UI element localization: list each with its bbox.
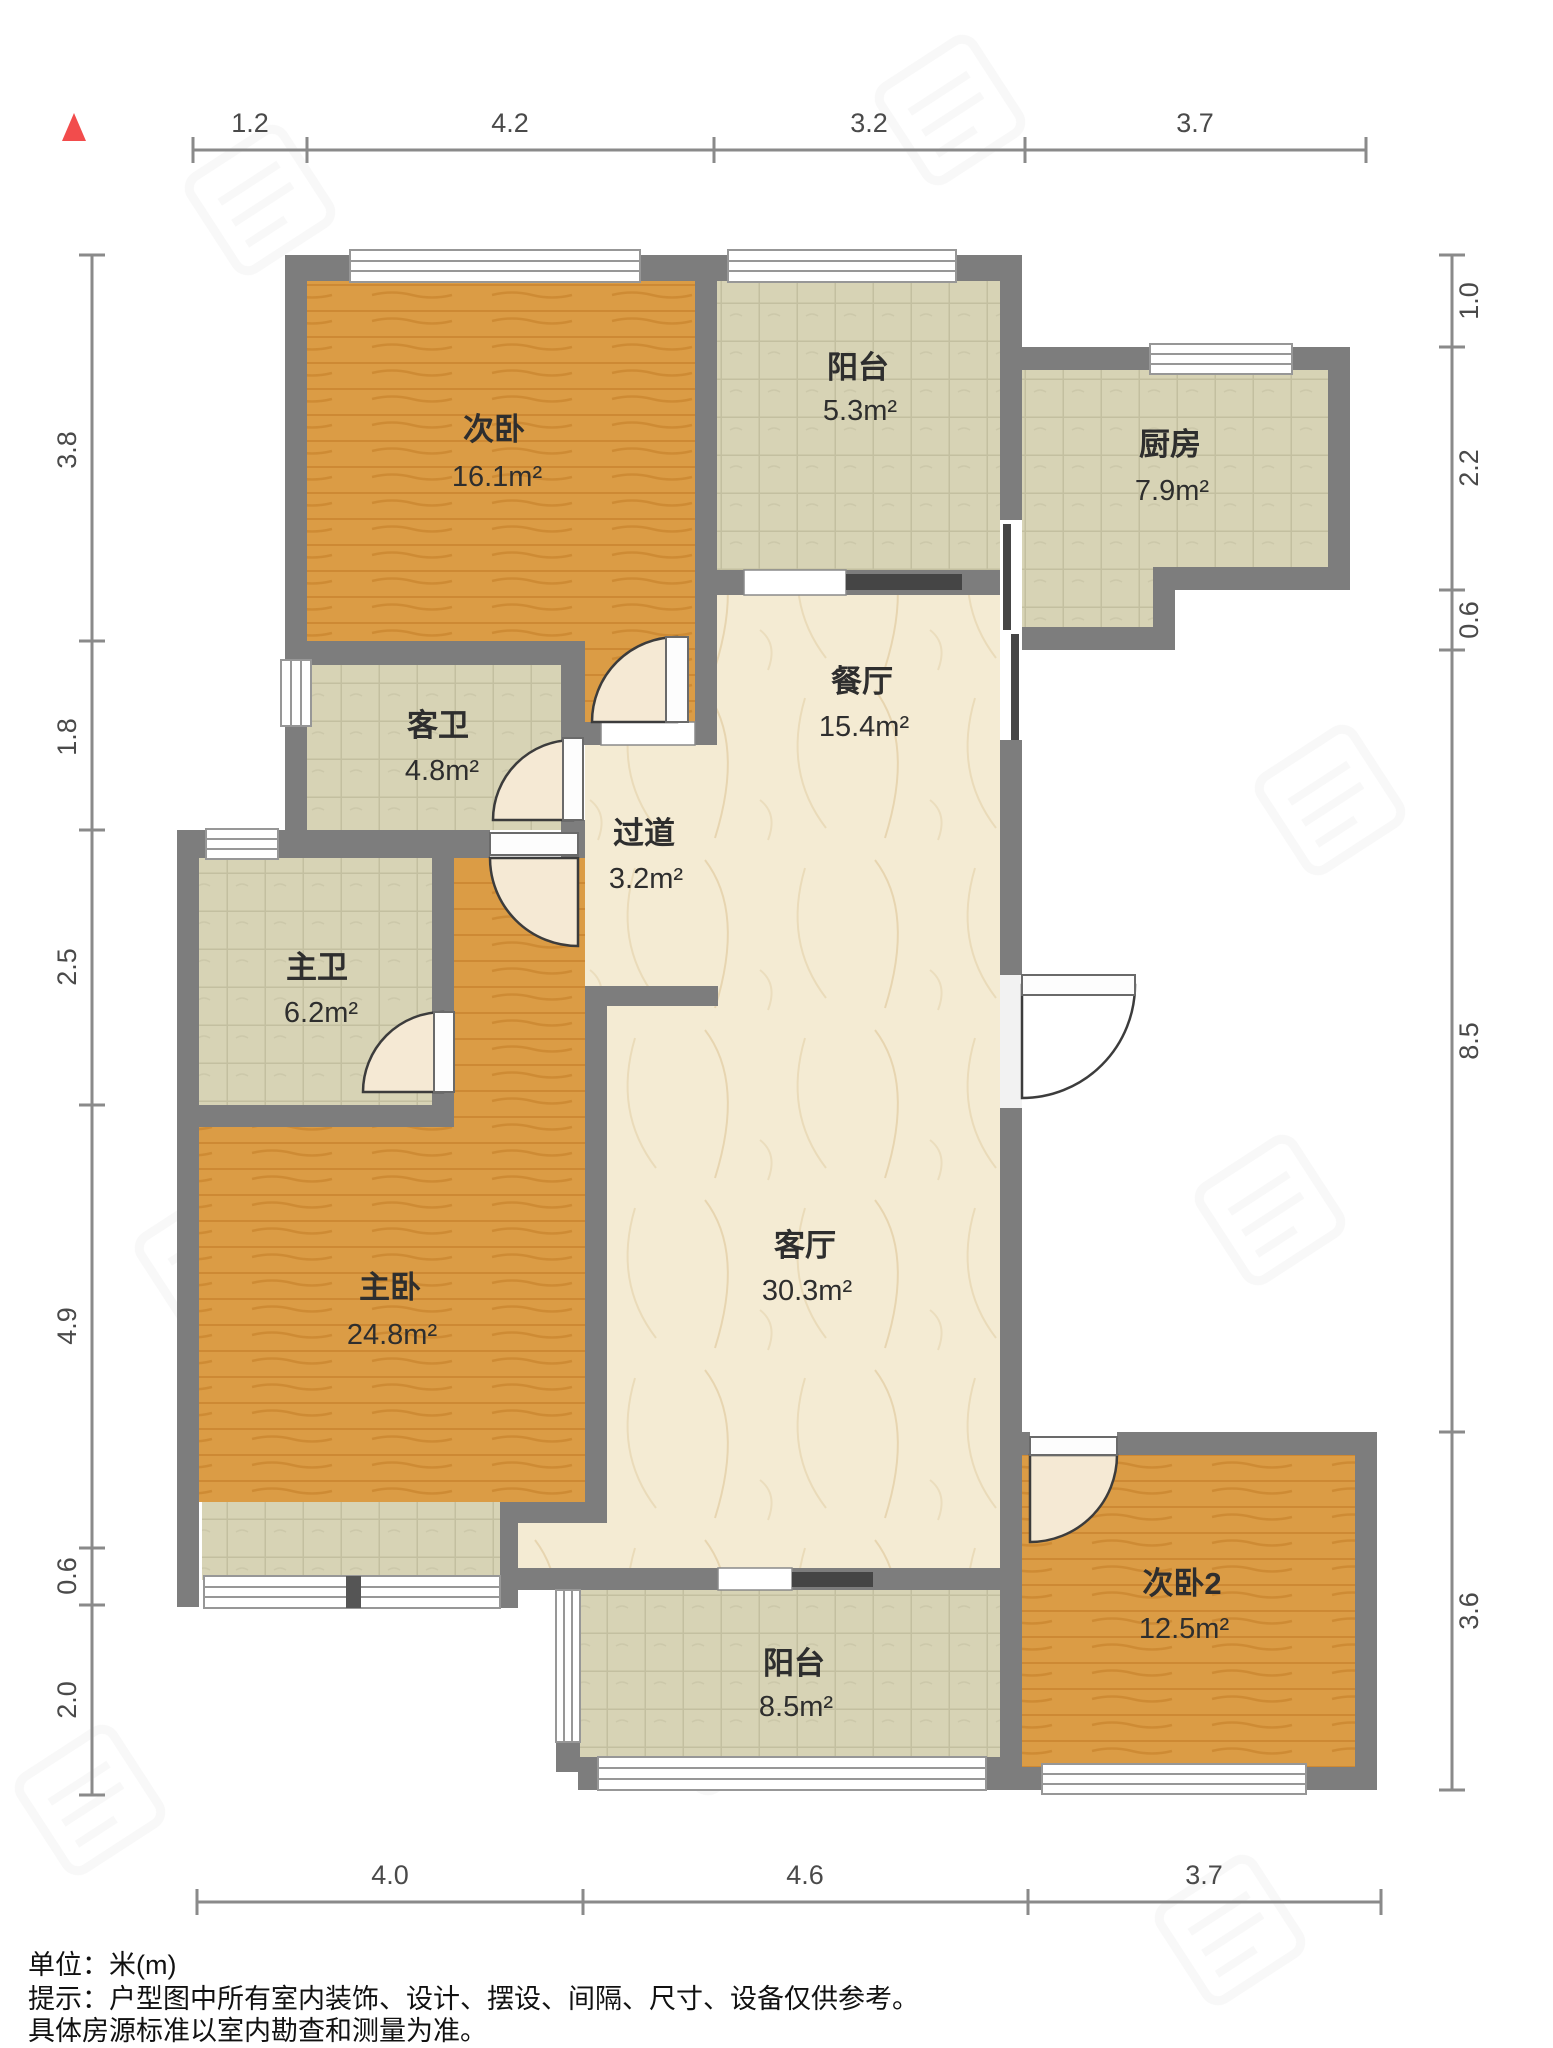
floorplan-svg: 次卧 16.1m² 阳台 5.3m² 厨房 7.9m² 餐厅 15.4m² 客卫… bbox=[0, 0, 1553, 2048]
dim-right-2: 0.6 bbox=[1454, 601, 1484, 639]
north-marker-icon bbox=[62, 113, 86, 141]
window-yangtai-bottom-south bbox=[598, 1757, 986, 1790]
dim-left-5: 2.0 bbox=[52, 1681, 82, 1719]
label-zhuwo-name: 主卧 bbox=[359, 1270, 421, 1305]
dim-bottom-1: 4.6 bbox=[786, 1860, 824, 1890]
dim-right-1: 2.2 bbox=[1454, 449, 1484, 487]
dim-left-3: 4.9 bbox=[52, 1307, 82, 1345]
dimension-left: 3.8 1.8 2.5 4.9 0.6 2.0 bbox=[52, 255, 105, 1795]
label-canting-area: 15.4m² bbox=[819, 711, 910, 743]
dim-right-3: 8.5 bbox=[1454, 1022, 1484, 1060]
label-chufang-name: 厨房 bbox=[1139, 427, 1201, 462]
label-yangtai-top-name: 阳台 bbox=[827, 350, 889, 385]
wall-zhuwei-right-b bbox=[432, 1092, 454, 1105]
label-kewei-name: 客卫 bbox=[407, 708, 469, 743]
dim-top-2: 3.2 bbox=[850, 108, 888, 138]
window-cewo2-south bbox=[1042, 1764, 1306, 1794]
window-yangtai-bottom-west bbox=[556, 1590, 580, 1742]
label-guodao-area: 3.2m² bbox=[609, 863, 683, 895]
label-canting-name: 餐厅 bbox=[831, 664, 893, 699]
label-yangtai-bottom-area: 8.5m² bbox=[759, 1691, 833, 1723]
label-zhuwei-name: 主卫 bbox=[286, 950, 348, 985]
wall-yangtai-bottom-left-cap bbox=[556, 1742, 580, 1772]
dim-left-1: 1.8 bbox=[52, 718, 82, 756]
label-cewo-name: 次卧 bbox=[463, 412, 525, 447]
footer-tip-2: 具体房源标准以室内勘查和测量为准。 bbox=[28, 2016, 487, 2046]
wall-cewo2-top-a bbox=[1000, 1432, 1030, 1455]
wall-cewo2-top-b bbox=[1117, 1432, 1377, 1455]
window-zhuwo-bay-south bbox=[204, 1576, 500, 1608]
label-zhuwo-area: 24.8m² bbox=[347, 1319, 438, 1351]
label-keting-name: 客厅 bbox=[774, 1228, 836, 1263]
wall-left-upper bbox=[285, 255, 307, 830]
label-yangtai-bottom-name: 阳台 bbox=[763, 1646, 825, 1681]
window-kewei-west bbox=[281, 660, 311, 726]
dim-bottom-0: 4.0 bbox=[371, 1860, 409, 1890]
dim-top-0: 1.2 bbox=[231, 108, 269, 138]
label-yangtai-top-area: 5.3m² bbox=[823, 395, 897, 427]
footer: 单位：米(m) 提示：户型图中所有室内装饰、设计、摆设、间隔、尺寸、设备仅供参考… bbox=[28, 1950, 919, 2046]
wall-zhuwei-bottom bbox=[177, 1105, 454, 1127]
window-chufang-north bbox=[1150, 344, 1292, 374]
floor-zhuwo bbox=[199, 1127, 585, 1502]
opening-entry bbox=[1000, 975, 1022, 1108]
window-cewo-north bbox=[350, 250, 640, 282]
label-cewo2-area: 12.5m² bbox=[1139, 1613, 1230, 1645]
window-zhuwei-north bbox=[206, 829, 278, 859]
wall-mid-vertical bbox=[695, 255, 717, 745]
label-zhuwei-area: 6.2m² bbox=[284, 997, 358, 1029]
window-divider bbox=[346, 1576, 361, 1608]
label-guodao-name: 过道 bbox=[613, 816, 675, 851]
wall-keting-left bbox=[585, 986, 607, 1502]
dim-right-0: 1.0 bbox=[1454, 282, 1484, 320]
window-yangtai-top-north bbox=[728, 250, 956, 282]
dim-bottom-2: 3.7 bbox=[1185, 1860, 1223, 1890]
wall-chufang-notch-h bbox=[1175, 567, 1350, 590]
dim-top-1: 4.2 bbox=[491, 108, 529, 138]
wall-guodao-bottom bbox=[585, 986, 718, 1006]
dim-left-0: 3.8 bbox=[52, 431, 82, 469]
dimension-bottom: 4.0 4.6 3.7 bbox=[197, 1860, 1381, 1915]
wall-cewo-bottom bbox=[285, 641, 581, 665]
dim-top-3: 3.7 bbox=[1176, 108, 1214, 138]
label-cewo2-name: 次卧2 bbox=[1142, 1566, 1221, 1601]
footer-tip-1: 提示：户型图中所有室内装饰、设计、摆设、间隔、尺寸、设备仅供参考。 bbox=[28, 1984, 919, 2014]
dim-left-4: 0.6 bbox=[52, 1557, 82, 1595]
wall-zhuwo-bottom bbox=[500, 1502, 607, 1523]
dimension-right: 1.0 2.2 0.6 8.5 3.6 bbox=[1439, 255, 1484, 1790]
wall-yangtai-bottom-cap-l bbox=[578, 1757, 598, 1790]
wall-yangtai-bottom-cap-r bbox=[986, 1757, 1022, 1790]
footer-unit: 单位：米(m) bbox=[28, 1950, 176, 1980]
label-chufang-area: 7.9m² bbox=[1135, 475, 1209, 507]
label-keting-area: 30.3m² bbox=[762, 1275, 853, 1307]
wall-left-lower bbox=[177, 830, 199, 1607]
wall-chufang-right bbox=[1328, 347, 1350, 590]
floor-chufang-leg bbox=[1022, 567, 1153, 627]
floor-zhuwo-bay bbox=[202, 1502, 500, 1580]
wall-zhuwei-right-a bbox=[432, 830, 454, 1012]
dimension-top: 1.2 4.2 3.2 3.7 bbox=[193, 108, 1366, 163]
floor-chufang-main bbox=[1022, 370, 1328, 567]
dim-left-2: 2.5 bbox=[52, 948, 82, 986]
label-kewei-area: 4.8m² bbox=[405, 755, 479, 787]
door-entry bbox=[1022, 975, 1135, 1098]
wall-cewo2-right bbox=[1355, 1432, 1377, 1790]
wall-chufang-bottom bbox=[1000, 627, 1175, 650]
dim-right-4: 3.6 bbox=[1454, 1592, 1484, 1630]
floorplan-page: 次卧 16.1m² 阳台 5.3m² 厨房 7.9m² 餐厅 15.4m² 客卫… bbox=[0, 0, 1553, 2048]
label-cewo-area: 16.1m² bbox=[452, 461, 543, 493]
